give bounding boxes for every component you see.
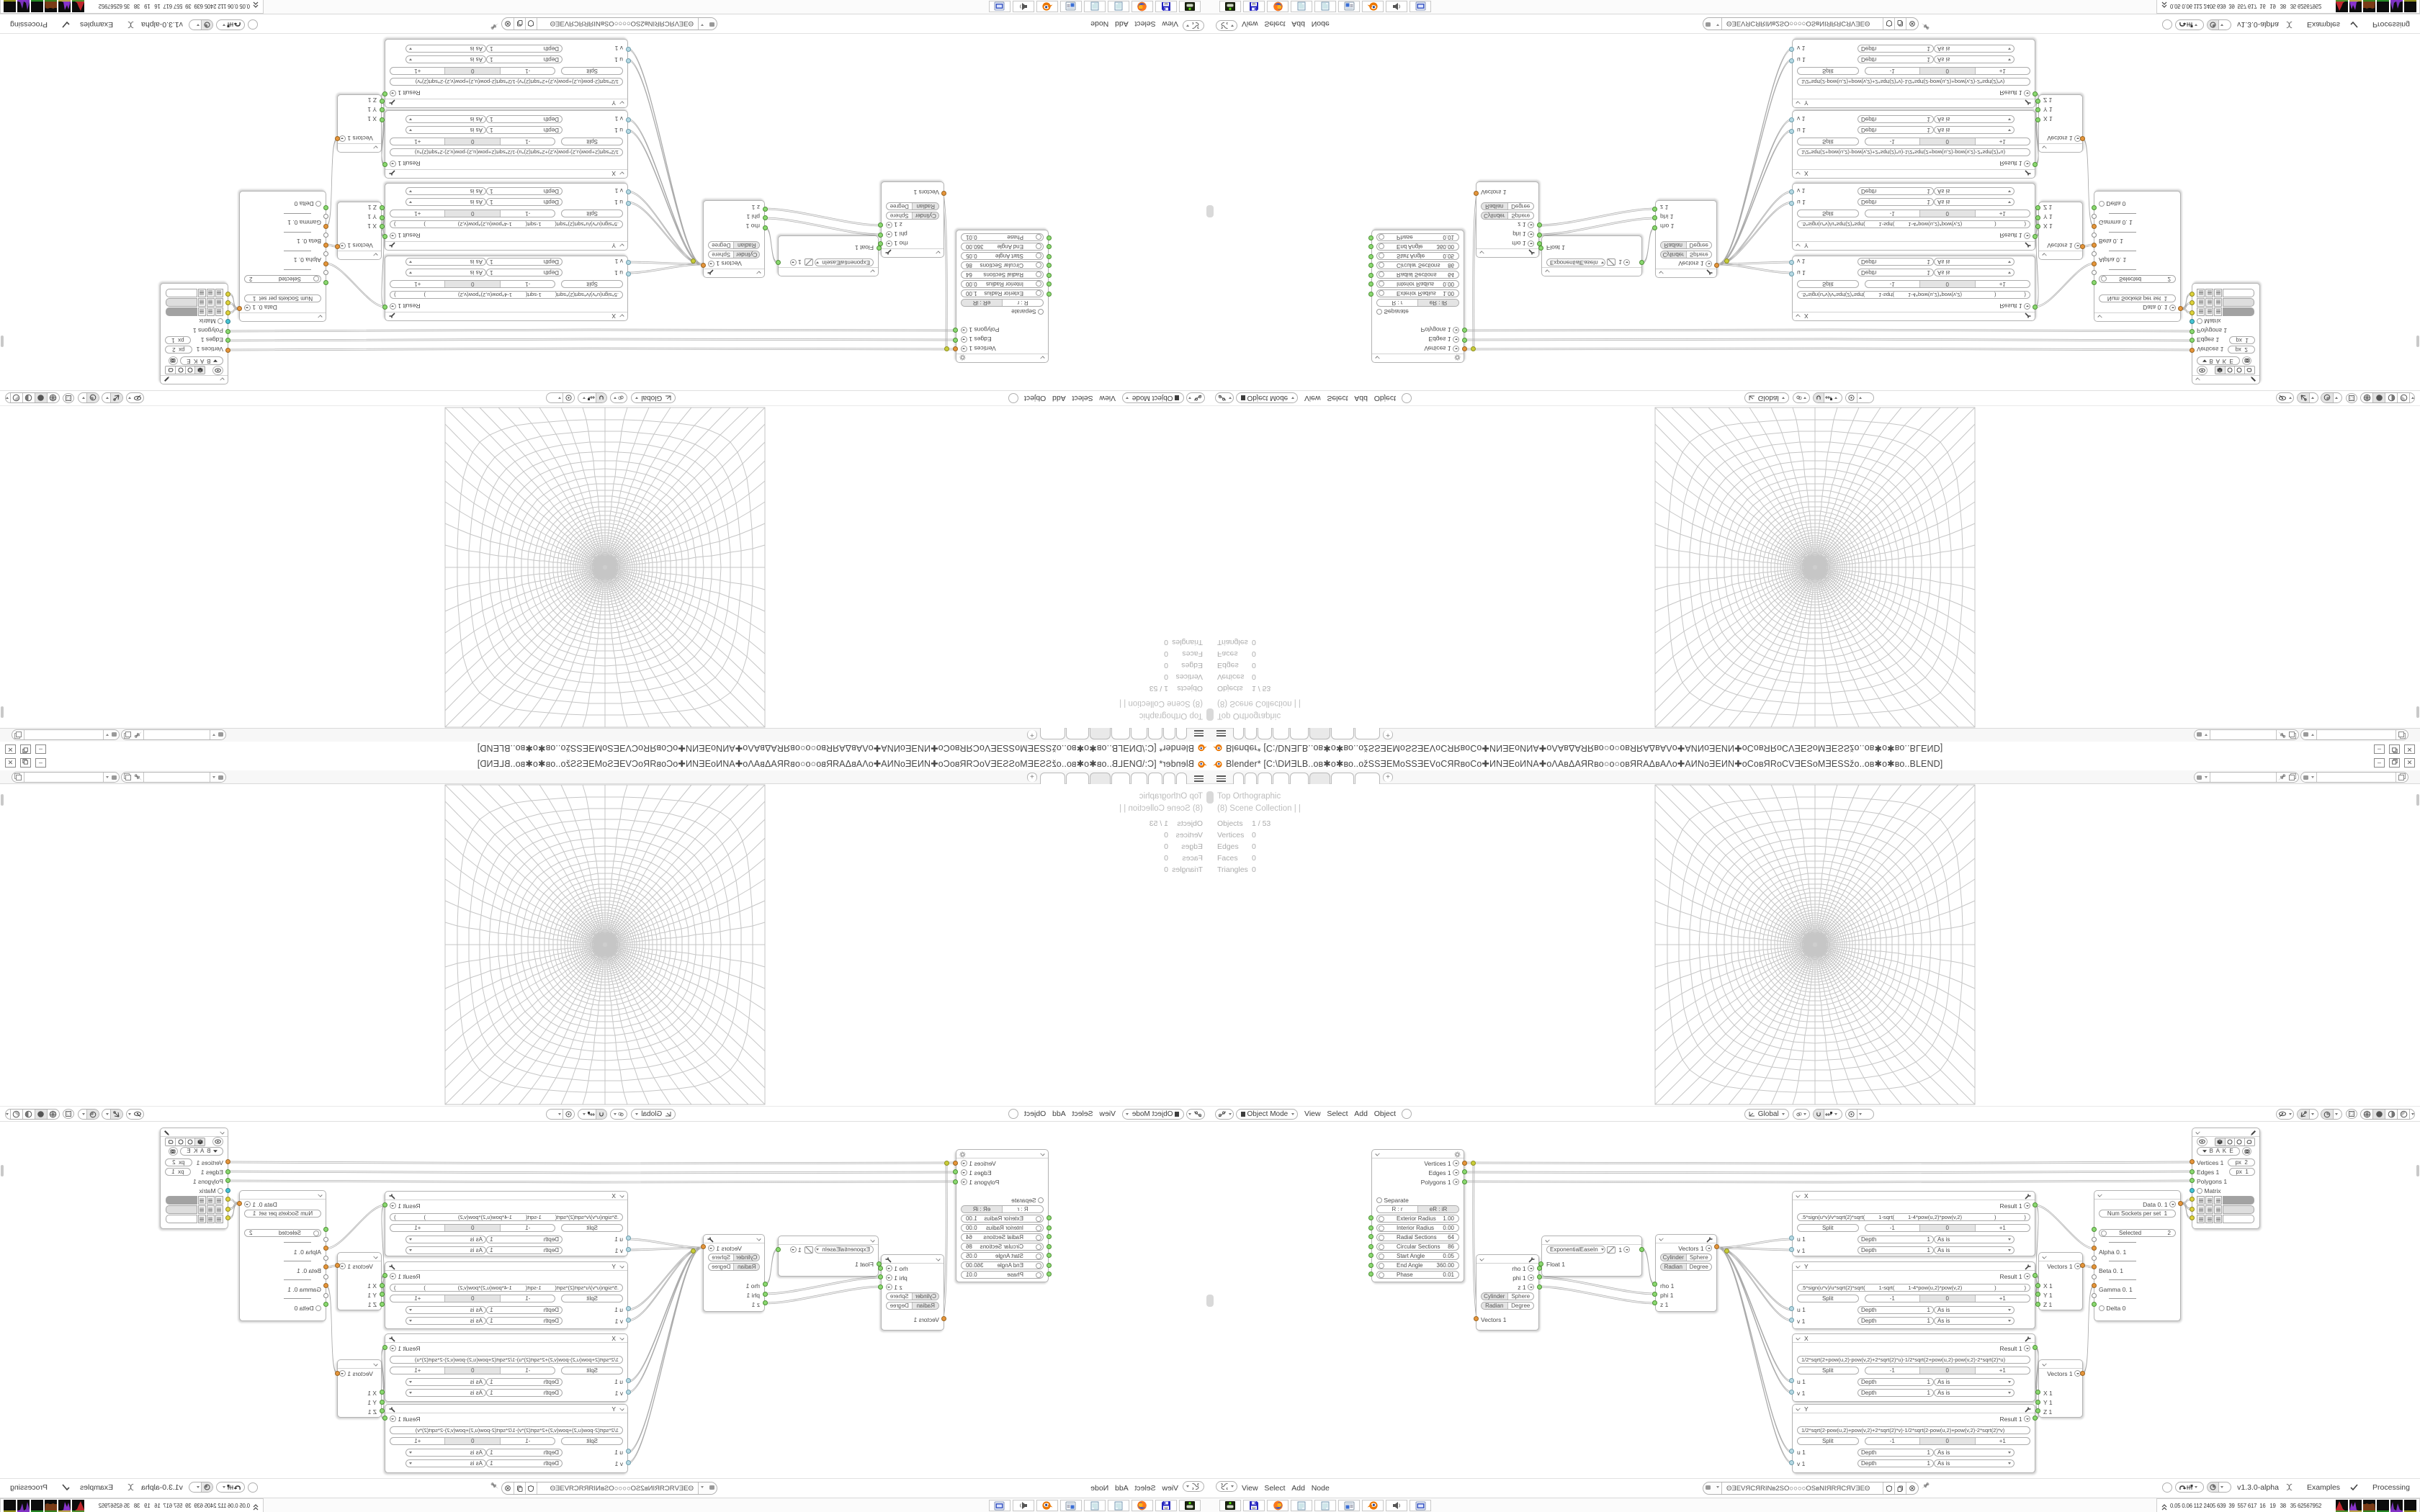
svg-text:64: 64 bbox=[1252, 1506, 1256, 1510]
svg-text:64: 64 bbox=[1164, 1506, 1168, 1510]
svg-text:64: 64 bbox=[1164, 2, 1168, 6]
svg-text:64: 64 bbox=[1252, 2, 1256, 6]
